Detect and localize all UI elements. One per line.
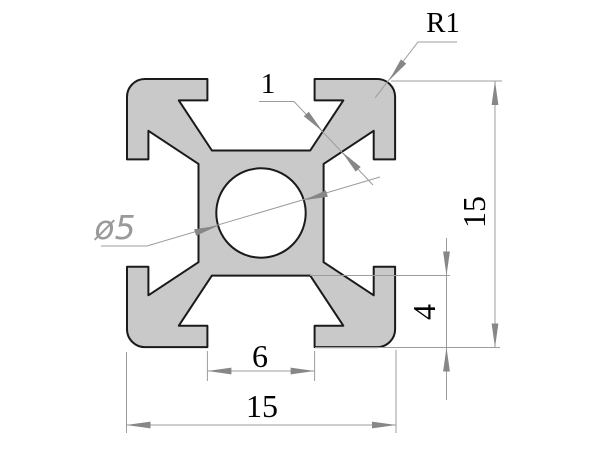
arrowhead	[372, 422, 396, 429]
arrowhead	[342, 152, 361, 172]
arrowhead	[127, 422, 151, 429]
drawing-svg: R1 1 ø5 15	[0, 0, 600, 450]
arrowhead	[492, 81, 499, 105]
dimension-label: R1	[426, 7, 460, 39]
center-bore-hole	[216, 168, 305, 257]
extrusion-profile	[127, 79, 395, 347]
arrowhead	[443, 252, 450, 276]
dimension-label: 4	[406, 304, 442, 320]
dimension-label: 6	[252, 338, 268, 374]
arrowhead	[291, 368, 315, 375]
dimension-label: 1	[261, 68, 276, 100]
arrowhead	[304, 112, 323, 132]
arrowhead	[207, 368, 231, 375]
technical-drawing: R1 1 ø5 15	[0, 0, 600, 455]
dimension-label: 15	[246, 388, 278, 424]
arrowhead	[492, 324, 499, 348]
dim-slot-opening: 6	[207, 338, 314, 381]
dimension-label: ø5	[93, 208, 135, 247]
arrowhead	[443, 348, 450, 372]
dimension-label: 15	[456, 196, 492, 228]
arrowhead	[389, 59, 406, 80]
